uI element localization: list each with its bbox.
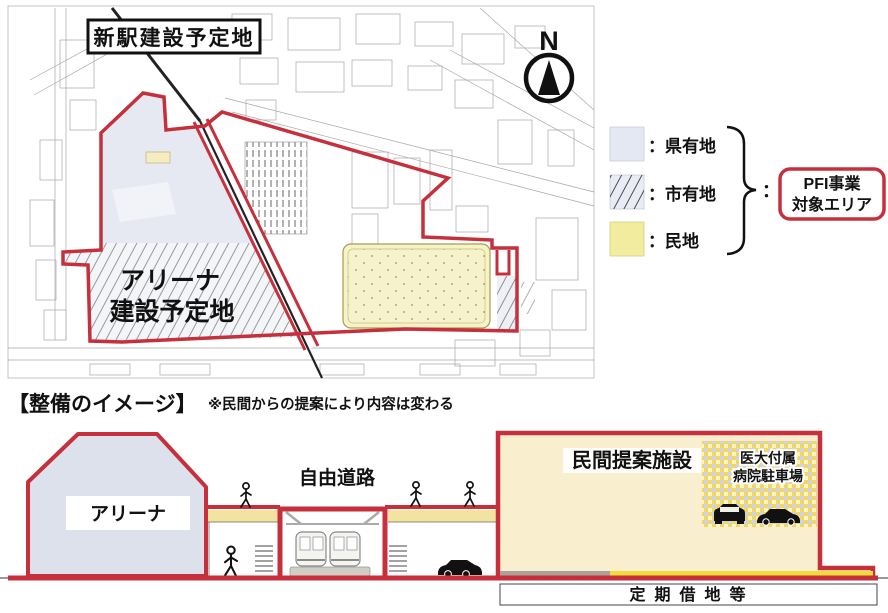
arena-site-label-line1: アリーナ (120, 267, 220, 295)
private-land-detail (348, 249, 485, 323)
stairs-right (389, 546, 407, 576)
deck-left-ceiling (208, 510, 278, 522)
map-legend: ：県有地 ：市有地 ：民地 ： PFI事業 対象エリア (610, 127, 884, 256)
pfi-label-line2: 対象エリア (791, 195, 872, 214)
legend-swatch-private (610, 222, 644, 256)
free-road-label: 自由道路 (299, 466, 376, 489)
car-icon-underpass (438, 560, 482, 577)
legend-brace (727, 127, 756, 254)
figure-canvas: 新駅建設予定地 アリーナ 建設予定地 N ：県有地 ：市有地 ：民地 ： PFI… (0, 0, 888, 613)
arena-site-label-line2: 建設予定地 (109, 297, 234, 326)
small-map-label-box (146, 152, 170, 163)
pfi-label-line1: PFI事業 (804, 174, 862, 193)
site-map: 新駅建設予定地 アリーナ 建設予定地 N (8, 6, 594, 378)
compass-n-label: N (539, 26, 559, 56)
lease-label: 定期借地等 (628, 585, 754, 604)
cross-section-diagram: アリーナ (0, 433, 888, 605)
planning-figure: 新駅建設予定地 アリーナ 建設予定地 N ：県有地 ：市有地 ：民地 ： PFI… (0, 0, 888, 613)
station-site-label: 新駅建設予定地 (94, 26, 255, 50)
legend-swatch-prefectural (610, 127, 644, 161)
section-title: 【整備のイメージ】 (8, 392, 197, 416)
section-note: ※民間からの提案により内容は変わる (208, 395, 454, 413)
legend-swatch-city-hatch (610, 175, 644, 209)
hatch-strip (497, 276, 517, 330)
arena-label: アリーナ (90, 504, 166, 525)
legend-colon: ： (762, 181, 780, 201)
deck-right-ceiling (388, 510, 496, 522)
private-facility-label: 民間提案施設 (572, 448, 693, 472)
hospital-parking-label-line1: 医大付属 (740, 450, 796, 466)
legend-label-private: ：民地 (648, 231, 699, 251)
platform (290, 567, 370, 576)
train-icon (290, 532, 370, 576)
hospital-parking-label-line2: 病院駐車場 (733, 468, 803, 484)
hatch-strip-2 (521, 282, 535, 314)
legend-label-city: ：市有地 (648, 184, 716, 204)
legend-label-prefectural: ：県有地 (648, 136, 716, 156)
stairs-left (255, 546, 273, 576)
